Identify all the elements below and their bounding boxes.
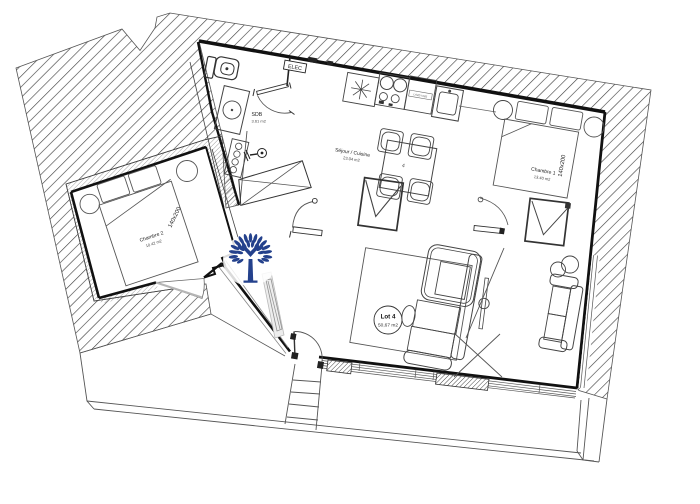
svg-text:Lot 4: Lot 4 (381, 314, 396, 321)
svg-text:SDB: SDB (252, 112, 263, 118)
svg-text:3.61 m2: 3.61 m2 (252, 119, 267, 124)
svg-text:50,67 m2: 50,67 m2 (378, 323, 398, 329)
